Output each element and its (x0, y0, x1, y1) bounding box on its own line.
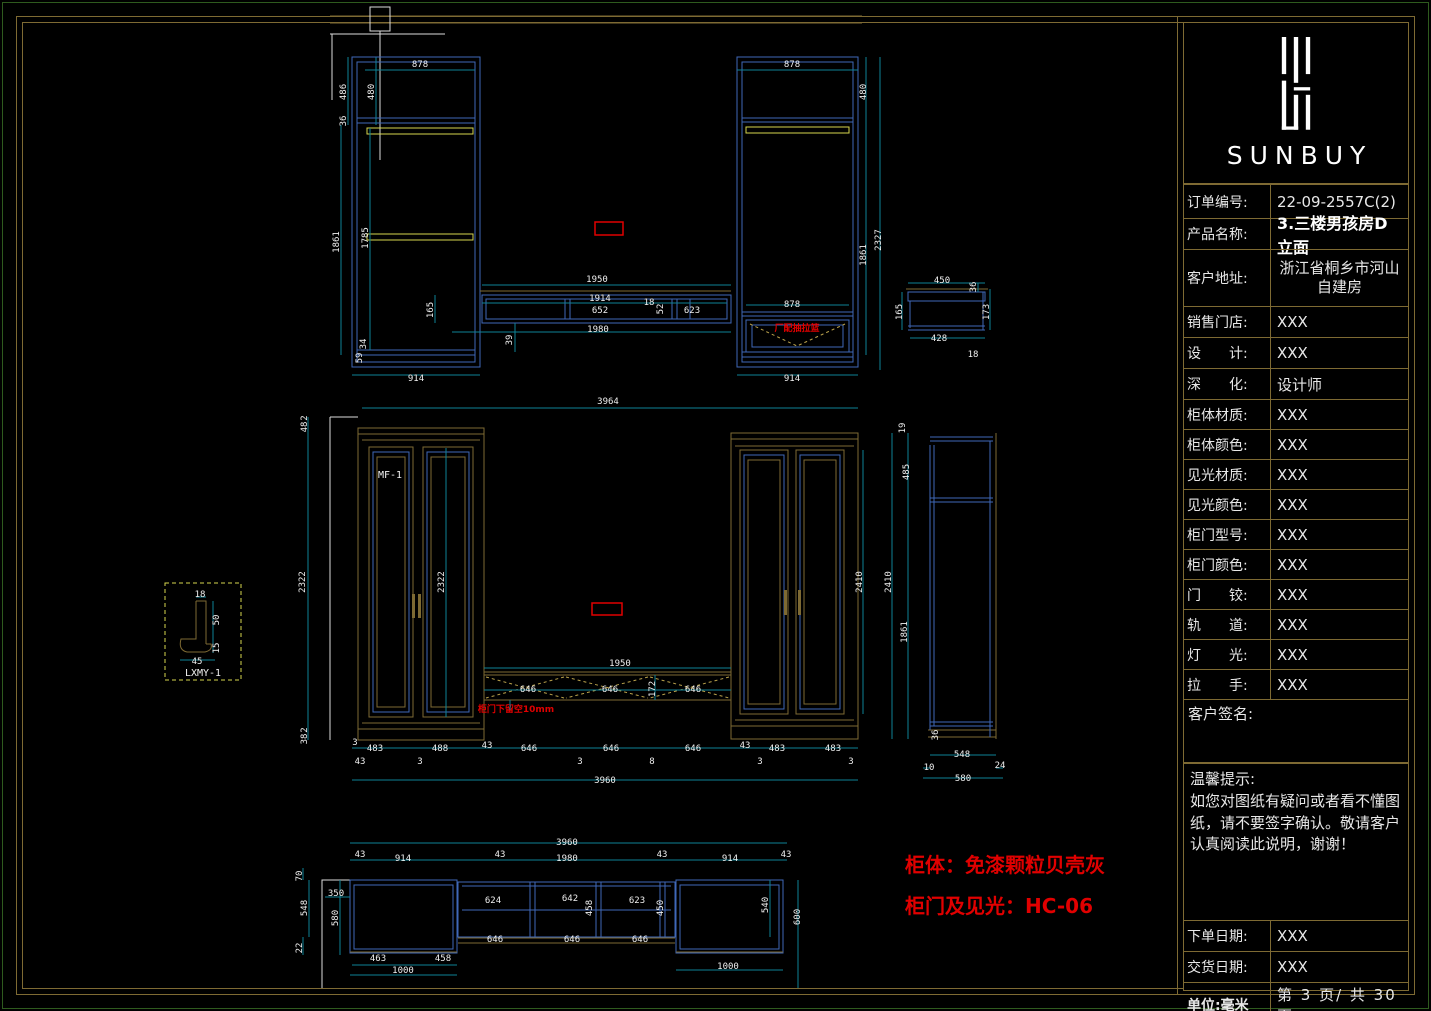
field-value: XXX (1271, 610, 1408, 639)
right-cabinet-shelves (742, 118, 853, 357)
signature-label: 客户签名: (1188, 705, 1253, 723)
notice-area: 温馨提示: 如您对图纸有疑问或者看不懂图纸，请不要签字确认。敬请客户认真阅读此说… (1184, 762, 1408, 920)
sunbuy-logo-icon (1281, 37, 1311, 133)
dim-label: 485 (902, 464, 912, 480)
ceiling-lines (330, 16, 862, 23)
field-label: 柜体颜色: (1184, 430, 1271, 459)
side-cabinet-lines (930, 437, 993, 737)
field-value: XXX (1271, 921, 1408, 951)
tv-marker-middle (592, 603, 622, 615)
dim-label: 463 (370, 954, 386, 964)
dim-label: 1000 (392, 966, 414, 976)
right-door-2-panel (804, 460, 836, 704)
field-label: 客户地址: (1184, 250, 1271, 306)
field-value: XXX (1271, 520, 1408, 549)
dim-label: 486 (339, 84, 349, 100)
tv-marker-top (595, 222, 623, 235)
dim-label: 646 (632, 935, 648, 945)
dim-label: 483 (825, 744, 841, 754)
row-body-material: 柜体材质: XXX (1184, 399, 1408, 429)
field-value: 浙江省桐乡市河山自建房 (1271, 250, 1408, 306)
door-handle (798, 590, 801, 615)
dim-label: 3 (757, 757, 762, 767)
dim-label: 3 (848, 757, 853, 767)
dim-label: 878 (784, 60, 800, 70)
dim-label: 914 (408, 374, 424, 384)
door-handle (418, 594, 421, 618)
gap-note: 柜门下留空10mm (477, 703, 554, 715)
dim-label: 45 (192, 657, 203, 667)
dim-label: 428 (931, 334, 947, 344)
row-order-date: 下单日期: XXX (1184, 920, 1408, 951)
dim-label: 50 (212, 615, 222, 626)
field-label: 见光颜色: (1184, 490, 1271, 519)
middle-dim-lines (180, 408, 1003, 780)
drawer-note: 厂配抽拉篮 (774, 322, 819, 334)
dim-label: 350 (328, 889, 344, 899)
hanging-rod-2 (367, 234, 473, 240)
drawing-sheet: 厂配抽拉篮 8784864803618611785345991419501914… (0, 0, 1431, 1011)
field-label: 拉 手: (1184, 670, 1271, 699)
dim-label: 18 (644, 298, 655, 308)
row-hinge: 门 铰: XXX (1184, 579, 1408, 609)
dim-label: 646 (603, 744, 619, 754)
dim-label: 3960 (594, 776, 616, 786)
dim-label: 2322 (298, 571, 308, 593)
dim-label: 18 (968, 350, 979, 360)
field-value: XXX (1271, 338, 1408, 368)
dim-label: 36 (931, 730, 941, 741)
dim-label: 483 (769, 744, 785, 754)
row-sales-store: 销售门店: XXX (1184, 306, 1408, 337)
dim-label: 1861 (900, 621, 910, 643)
row-visible-color: 见光颜色: XXX (1184, 489, 1408, 519)
dim-label: 8 (649, 757, 654, 767)
dim-label: 10 (924, 763, 935, 773)
dim-label: 540 (761, 897, 771, 913)
page-info: 第 3 页/ 共 30 页 (1271, 983, 1408, 1011)
row-customer-address: 客户地址: 浙江省桐乡市河山自建房 (1184, 249, 1408, 306)
dim-label: 1785 (361, 227, 371, 249)
row-product-name: 产品名称: 3.三楼男孩房D立面 (1184, 218, 1408, 249)
dim-label: 548 (954, 750, 970, 760)
dim-label: 3960 (556, 838, 578, 848)
dim-label: 646 (564, 935, 580, 945)
dim-label: 43 (355, 757, 366, 767)
dim-label: 600 (793, 909, 803, 925)
notice-body: 如您对图纸有疑问或者看不懂图纸，请不要签字确认。敬请客户认真阅读此说明，谢谢！ (1190, 791, 1402, 856)
right-door-1-frame (744, 455, 784, 709)
logo-area: SUNBUY (1184, 23, 1408, 184)
right-tall-cabinet-inner (742, 62, 853, 362)
field-label: 柜门型号: (1184, 520, 1271, 549)
plan-middle-dividers (462, 882, 671, 937)
dim-label: 165 (426, 302, 436, 318)
hanging-rod-1 (367, 128, 473, 134)
bottom-plan: 3960439144319804391443703505485802262464… (295, 838, 803, 988)
dim-label: 48 (300, 422, 310, 433)
plan-right-unit (676, 880, 783, 953)
dim-label: 173 (982, 304, 992, 320)
dim-label: 2410 (855, 571, 865, 593)
dim-label: 1950 (609, 659, 631, 669)
field-label: 设 计: (1184, 338, 1271, 368)
left-door-1-frame (373, 452, 409, 712)
row-track: 轨 道: XXX (1184, 609, 1408, 639)
field-label: 灯 光: (1184, 640, 1271, 669)
row-door-color: 柜门颜色: XXX (1184, 549, 1408, 579)
row-body-color: 柜体颜色: XXX (1184, 429, 1408, 459)
dim-label: 642 (562, 894, 578, 904)
left-cabinet-shelves (357, 118, 475, 355)
dim-label: 3964 (597, 397, 619, 407)
dim-label: 36 (969, 282, 979, 293)
middle-elevation: MF-1 柜门下留空10mm LXMY-1 396424823222382322… (165, 397, 1005, 786)
middle-dim-labels: 3964248232223823221950646646646172241024… (192, 397, 1006, 786)
row-delivery-date: 交货日期: XXX (1184, 951, 1408, 982)
dim-label: 458 (585, 900, 595, 916)
dim-label: 1000 (717, 962, 739, 972)
dim-label: 914 (722, 854, 738, 864)
dim-label: 1980 (587, 325, 609, 335)
dim-label: 480 (367, 84, 377, 100)
field-label: 产品名称: (1184, 219, 1271, 249)
dim-label: 2327 (874, 229, 884, 251)
dim-label: 652 (592, 306, 608, 316)
dim-label: 172 (648, 681, 658, 697)
row-door-model: 柜门型号: XXX (1184, 519, 1408, 549)
side-view-lines (908, 292, 985, 330)
dim-label: 39 (505, 335, 515, 346)
dim-label: 646 (685, 685, 701, 695)
dim-label: 3 (352, 738, 357, 748)
dim-label: 2322 (437, 571, 447, 593)
dim-label: 480 (859, 84, 869, 100)
top-elevation: 厂配抽拉篮 8784864803618611785345991419501914… (330, 7, 992, 384)
plan-right-unit-inner (680, 885, 779, 949)
unit-label: 单位:毫米 (1184, 983, 1271, 1011)
moulding-profile (180, 601, 211, 652)
dim-label: 624 (485, 896, 501, 906)
dim-label: 450 (934, 276, 950, 286)
dim-label: 458 (435, 954, 451, 964)
dim-label: 1861 (332, 231, 342, 253)
field-value: XXX (1271, 550, 1408, 579)
door-model-label: MF-1 (378, 470, 402, 481)
field-label: 见光材质: (1184, 460, 1271, 489)
dim-label: 59 (355, 353, 365, 364)
cad-drawing-canvas: 厂配抽拉篮 8784864803618611785345991419501914… (0, 0, 1180, 1011)
top-dim-lines (341, 57, 990, 375)
dim-label: 580 (331, 910, 341, 926)
right-wardrobe-door-2 (796, 450, 844, 714)
dim-label: 488 (432, 744, 448, 754)
field-value: XXX (1271, 580, 1408, 609)
dim-label: 15 (212, 643, 222, 654)
field-value: XXX (1271, 460, 1408, 489)
field-value: 3.三楼男孩房D立面 (1271, 219, 1408, 249)
plan-left-unit (350, 880, 457, 953)
dim-label: 38 (300, 734, 310, 745)
dim-label: 3 (417, 757, 422, 767)
hanging-rod-3 (746, 127, 849, 133)
row-unit-page: 单位:毫米 第 3 页/ 共 30 页 (1184, 982, 1408, 1011)
dim-label: 878 (412, 60, 428, 70)
dim-label: 70 (295, 871, 305, 882)
top-dim-labels: 8784864803618611785345991419501914652185… (332, 60, 992, 384)
field-label: 交货日期: (1184, 952, 1271, 982)
left-door-1-panel (377, 457, 405, 707)
dim-label: 43 (740, 741, 751, 751)
dim-label: 43 (495, 850, 506, 860)
dim-label: 2 (300, 727, 310, 732)
dim-label: 1980 (556, 854, 578, 864)
field-value: XXX (1271, 490, 1408, 519)
field-label: 轨 道: (1184, 610, 1271, 639)
title-block: SUNBUY 订单编号: 22-09-2557C(2) 产品名称: 3.三楼男孩… (1183, 22, 1409, 991)
body-material-note: 柜体：免漆颗粒贝壳灰 (905, 853, 1105, 877)
dim-label: 43 (482, 741, 493, 751)
dim-label: 450 (656, 900, 666, 916)
dim-label: 646 (520, 685, 536, 695)
row-lighting: 灯 光: XXX (1184, 639, 1408, 669)
brand-name: SUNBUY (1220, 141, 1373, 170)
field-value: XXX (1271, 430, 1408, 459)
material-notes: 柜体：免漆颗粒贝壳灰 柜门及见光：HC-06 (905, 853, 1105, 918)
field-value: XXX (1271, 400, 1408, 429)
dim-label: 483 (367, 744, 383, 754)
left-tall-cabinet-inner (357, 62, 475, 362)
field-label: 销售门店: (1184, 307, 1271, 337)
right-wardrobe-door-1 (740, 450, 788, 714)
dim-label: 646 (685, 744, 701, 754)
row-designer: 设 计: XXX (1184, 337, 1408, 368)
dim-label: 914 (395, 854, 411, 864)
dim-label: 22 (295, 943, 305, 954)
dim-label: 1861 (859, 244, 869, 266)
plan-dim-labels: 3960439144319804391443703505485802262464… (295, 838, 803, 976)
dim-label: 878 (784, 300, 800, 310)
dim-label: 914 (784, 374, 800, 384)
right-wardrobe (731, 433, 858, 739)
dim-label: 34 (359, 339, 369, 350)
moulding-detail-label: LXMY-1 (185, 668, 221, 679)
field-value: XXX (1271, 952, 1408, 982)
row-detailer: 深 化: 设计师 (1184, 368, 1408, 399)
door-material-note: 柜门及见光：HC-06 (905, 894, 1093, 918)
dim-label: 165 (895, 304, 905, 320)
left-tall-cabinet (352, 57, 480, 367)
dim-label: 36 (339, 116, 349, 127)
dim-label: 2 (300, 415, 310, 420)
dim-label: 24 (995, 761, 1006, 771)
dim-label: 2410 (884, 571, 894, 593)
field-label: 深 化: (1184, 369, 1271, 399)
dim-label: 19 (898, 423, 908, 434)
right-door-2-frame (800, 455, 840, 709)
left-wardrobe-door-1 (369, 447, 413, 717)
dim-label: 43 (781, 850, 792, 860)
dim-label: 1950 (586, 275, 608, 285)
field-label: 订单编号: (1184, 185, 1271, 218)
dim-label: 646 (602, 685, 618, 695)
side-cabinet-edges (928, 433, 996, 739)
dim-label: 43 (657, 850, 668, 860)
customer-signature-area[interactable]: 客户签名: (1184, 699, 1408, 762)
dim-label: 646 (521, 744, 537, 754)
dim-label: 580 (955, 774, 971, 784)
field-value: XXX (1271, 640, 1408, 669)
dim-label: 43 (355, 850, 366, 860)
field-value: XXX (1271, 307, 1408, 337)
left-door-2-frame (427, 452, 469, 712)
dim-label: 646 (487, 935, 503, 945)
field-label: 柜体材质: (1184, 400, 1271, 429)
wall-outline-middle (330, 417, 358, 740)
plan-left-unit-inner (354, 885, 453, 949)
right-door-1-panel (748, 460, 780, 704)
door-handle (784, 590, 787, 615)
dim-label: 3 (577, 757, 582, 767)
row-visible-material: 见光材质: XXX (1184, 459, 1408, 489)
field-label: 门 铰: (1184, 580, 1271, 609)
door-handle (412, 594, 415, 618)
field-value: XXX (1271, 670, 1408, 699)
dim-label: 623 (684, 306, 700, 316)
tv-stand-dividers (565, 299, 690, 319)
field-label: 柜门颜色: (1184, 550, 1271, 579)
notice-title: 温馨提示: (1190, 769, 1402, 791)
right-wardrobe-crown-plinth (731, 439, 858, 726)
dim-label: 18 (195, 590, 206, 600)
dim-label: 1914 (589, 294, 611, 304)
dim-label: 548 (300, 900, 310, 916)
field-value: 设计师 (1271, 369, 1408, 399)
column-symbol (370, 7, 390, 31)
field-label: 下单日期: (1184, 921, 1271, 951)
dim-label: 52 (656, 304, 666, 315)
row-handle: 拉 手: XXX (1184, 669, 1408, 699)
dim-label: 623 (629, 896, 645, 906)
